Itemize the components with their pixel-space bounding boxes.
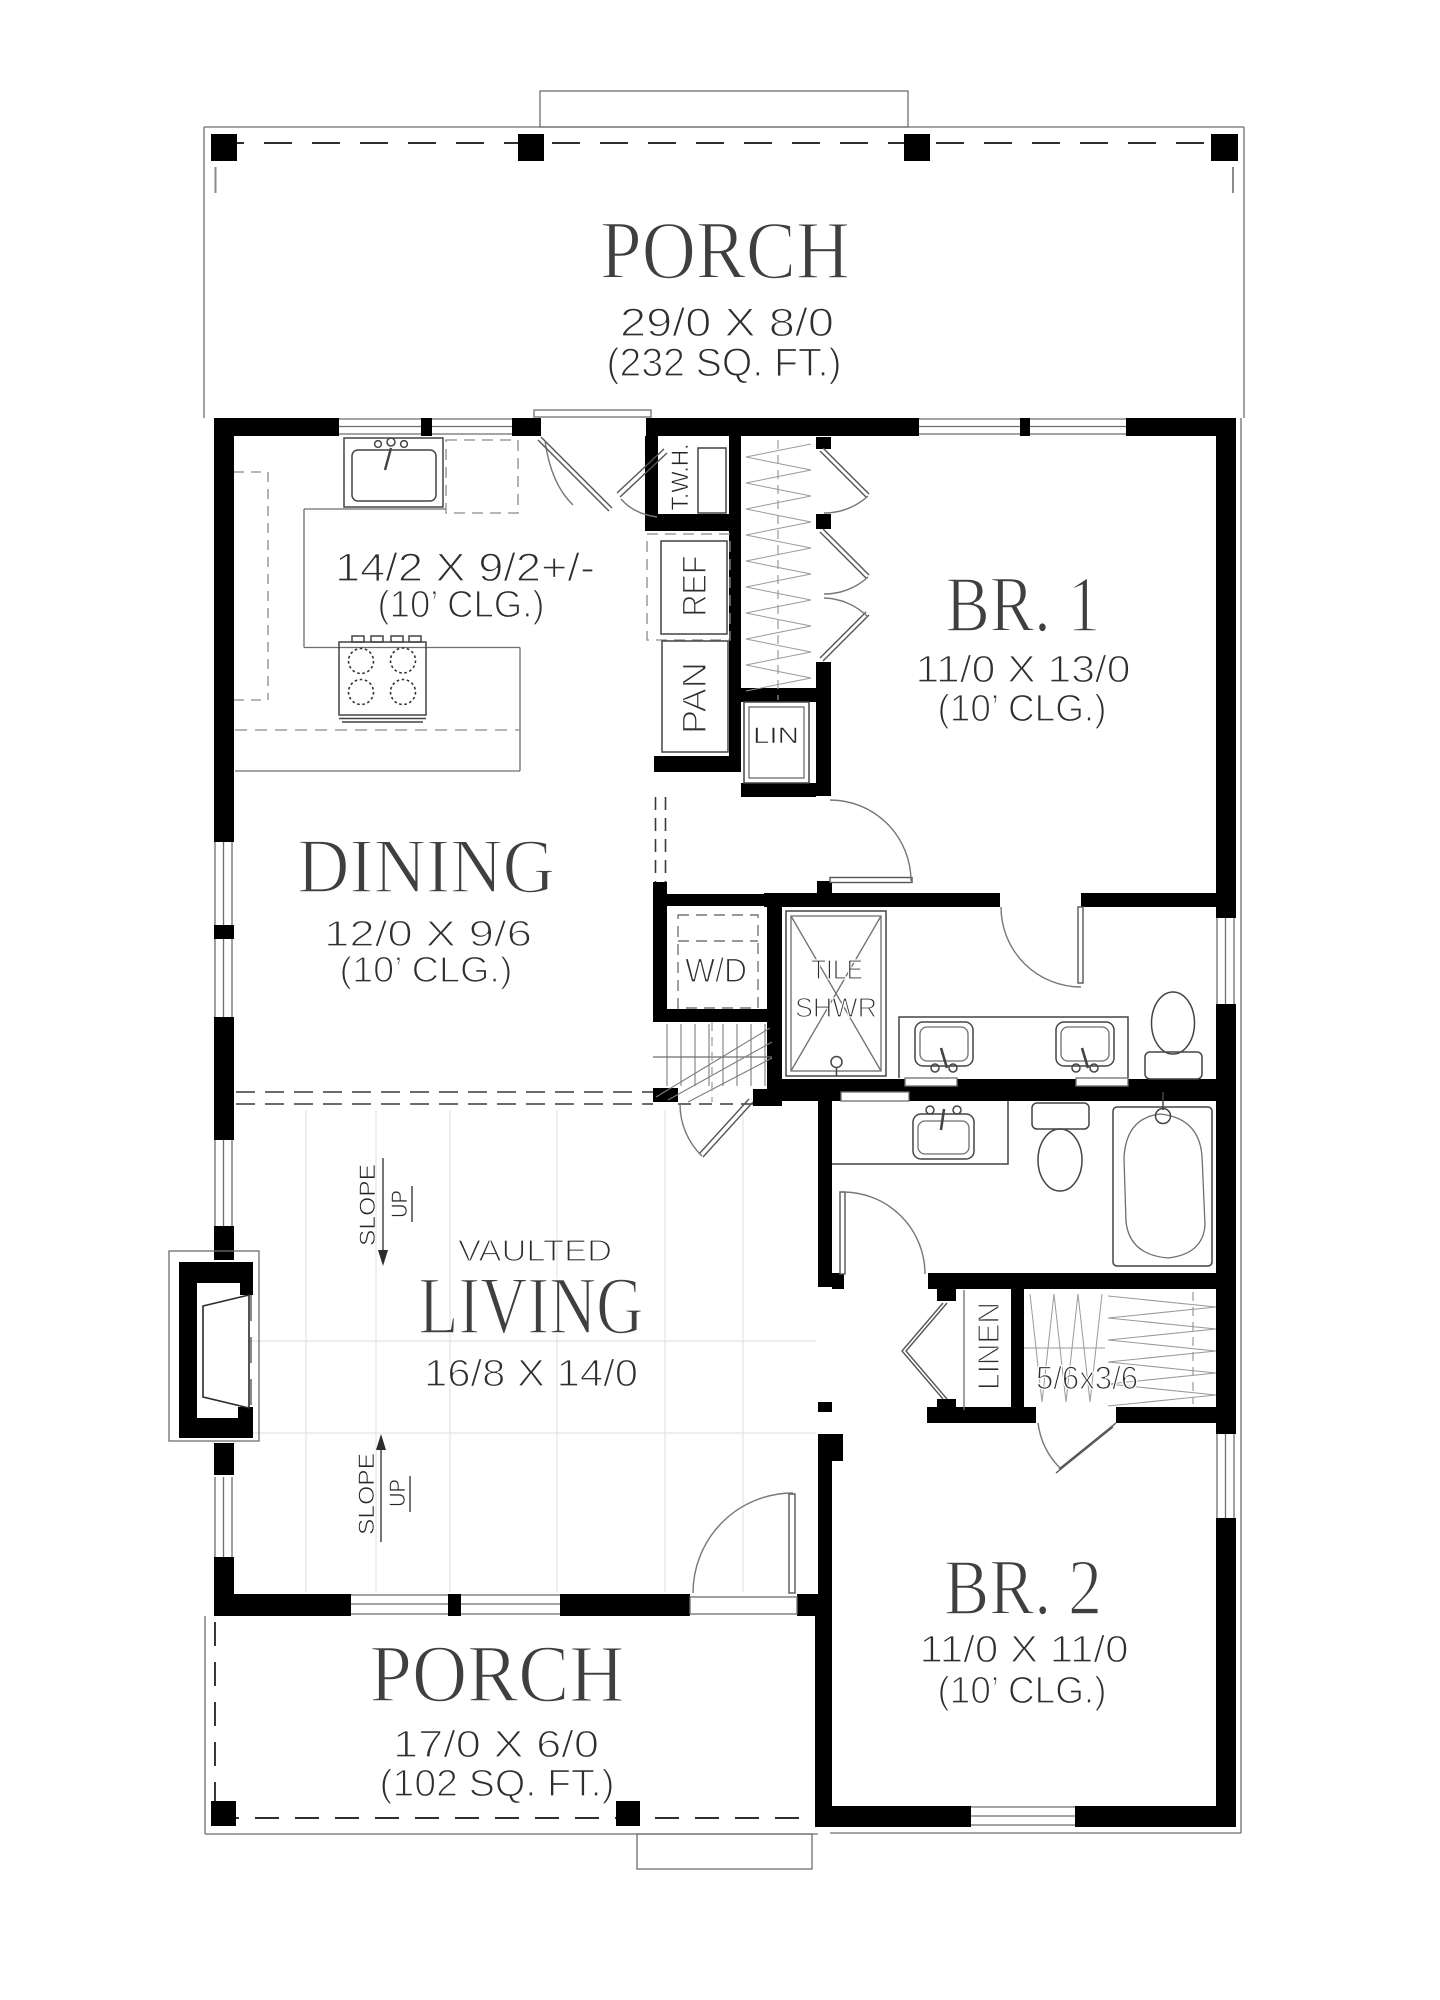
svg-text:PORCH: PORCH	[600, 204, 850, 296]
svg-text:5/6x3/6: 5/6x3/6	[1036, 1360, 1138, 1396]
svg-text:PAN: PAN	[676, 662, 714, 734]
svg-text:BR. 1: BR. 1	[946, 562, 1101, 649]
svg-text:PORCH: PORCH	[370, 1628, 625, 1719]
svg-text:LIVING: LIVING	[419, 1260, 644, 1351]
svg-text:(10’ CLG.): (10’ CLG.)	[938, 688, 1107, 730]
svg-text:(10’ CLG.): (10’ CLG.)	[378, 584, 545, 626]
svg-text:TILE: TILE	[811, 954, 863, 985]
svg-text:11/0 X 11/0: 11/0 X 11/0	[920, 1629, 1129, 1671]
svg-text:W/D: W/D	[685, 952, 747, 990]
svg-text:LINEN: LINEN	[971, 1302, 1006, 1390]
svg-text:SLOPE: SLOPE	[355, 1164, 380, 1246]
svg-text:SHWR: SHWR	[795, 992, 877, 1023]
svg-text:REF: REF	[676, 556, 714, 617]
svg-text:SLOPE: SLOPE	[354, 1453, 379, 1535]
svg-text:11/0 X 13/0: 11/0 X 13/0	[916, 649, 1131, 691]
svg-text:(10’ CLG.): (10’ CLG.)	[340, 949, 513, 990]
svg-text:BR. 2: BR. 2	[944, 1545, 1102, 1632]
svg-text:UP: UP	[387, 1190, 412, 1218]
svg-text:LIN: LIN	[753, 723, 799, 748]
svg-text:DINING: DINING	[297, 823, 555, 909]
svg-text:29/0 X 8/0: 29/0 X 8/0	[620, 301, 834, 345]
svg-text:UP: UP	[385, 1479, 410, 1507]
svg-text:17/0 X 6/0: 17/0 X 6/0	[393, 1724, 599, 1766]
svg-text:16/8 X 14/0: 16/8 X 14/0	[424, 1353, 638, 1395]
svg-text:(232 SQ. FT.): (232 SQ. FT.)	[607, 341, 842, 385]
svg-text:12/0 X 9/6: 12/0 X 9/6	[324, 913, 532, 954]
svg-text:(102 SQ. FT.): (102 SQ. FT.)	[380, 1763, 615, 1805]
svg-text:(10’ CLG.): (10’ CLG.)	[938, 1670, 1107, 1712]
svg-text:T.W.H.: T.W.H.	[667, 444, 694, 511]
